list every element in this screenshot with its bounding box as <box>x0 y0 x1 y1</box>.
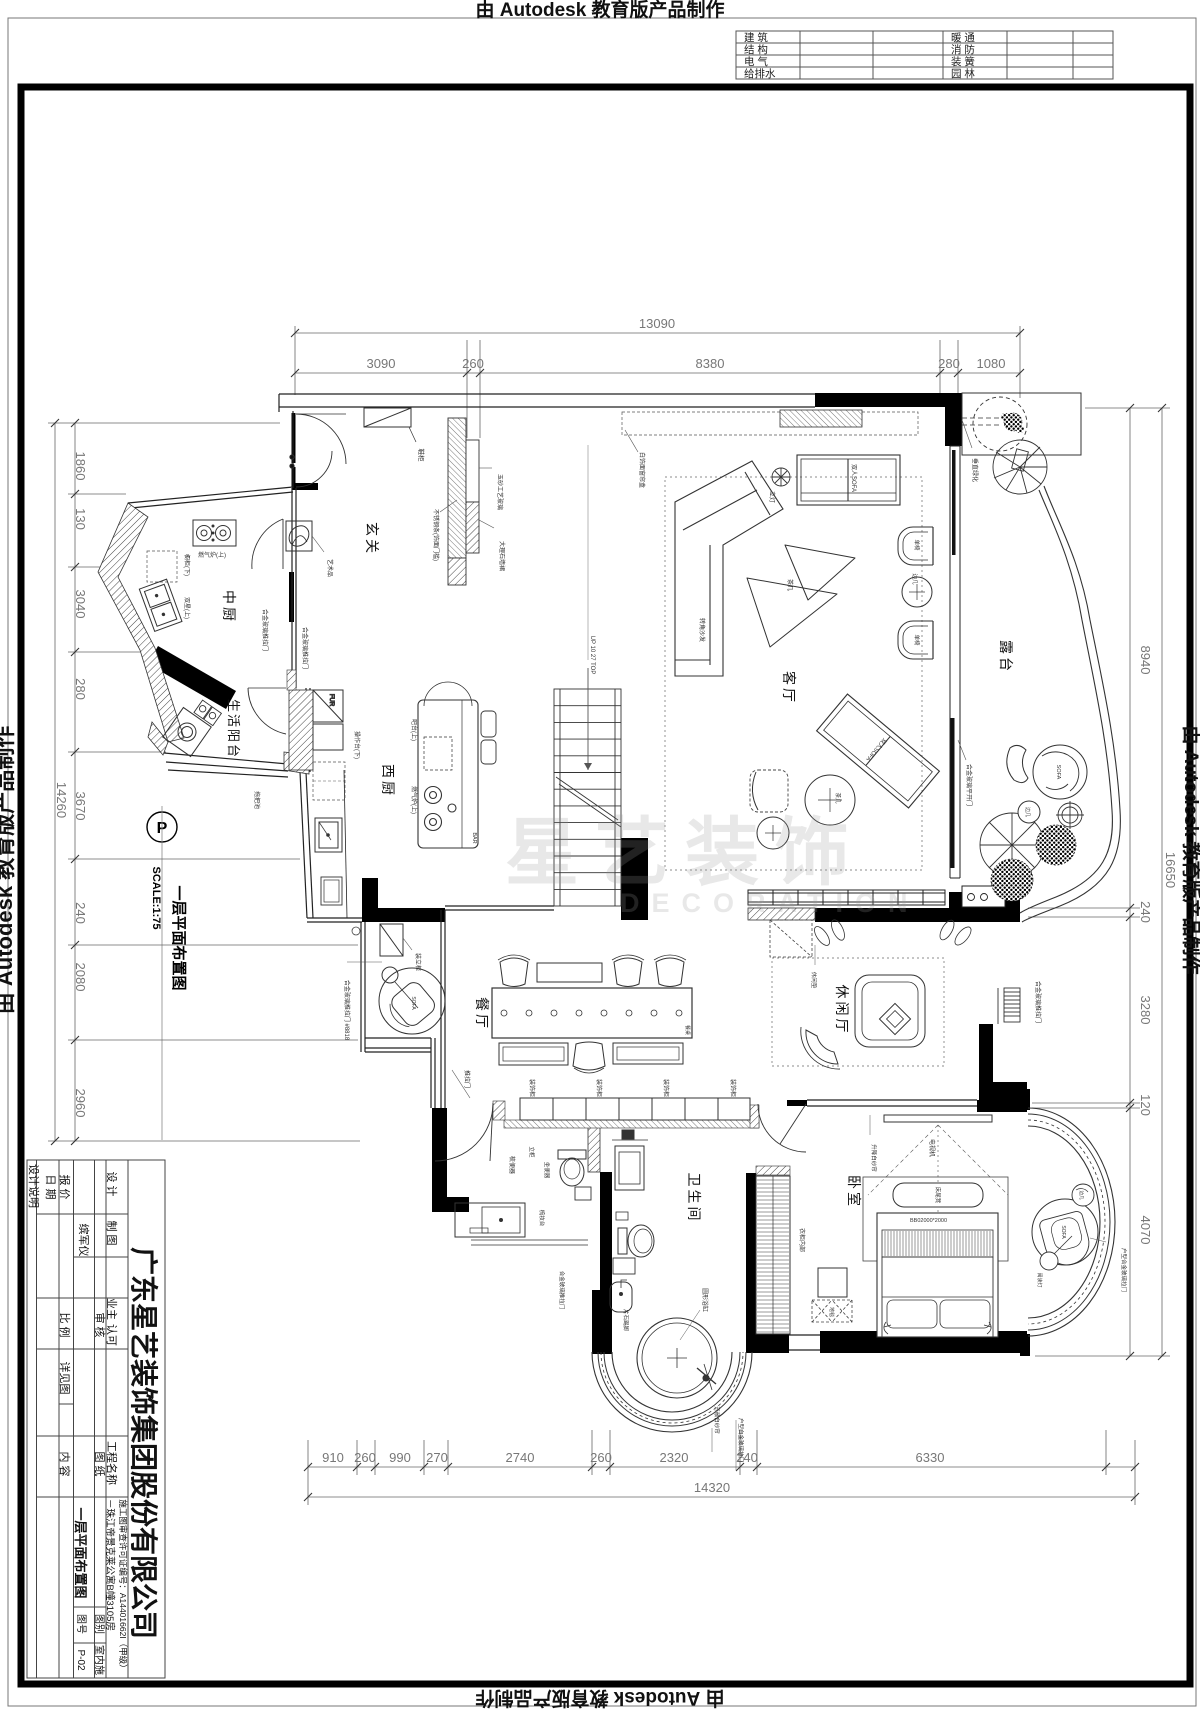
svg-text:休闲垫: 休闲垫 <box>810 972 818 989</box>
svg-text:西厨: 西厨 <box>380 764 396 798</box>
svg-text:240: 240 <box>1138 901 1153 923</box>
svg-text:一层平面布置图: 一层平面布置图 <box>170 885 188 990</box>
svg-text:操作台(下): 操作台(下) <box>353 731 361 759</box>
svg-text:茶几: 茶几 <box>786 579 794 591</box>
svg-text:开敞白纱帘: 开敞白纱帘 <box>713 1406 721 1434</box>
svg-text:16650: 16650 <box>1163 852 1178 888</box>
svg-text:双星(上): 双星(上) <box>183 597 191 619</box>
svg-text:3670: 3670 <box>73 792 88 821</box>
svg-text:茶几: 茶几 <box>834 792 842 804</box>
svg-text:由 Autodesk 教育版产品制作: 由 Autodesk 教育版产品制作 <box>1180 725 1200 974</box>
svg-text:生活阳台: 生活阳台 <box>226 699 241 759</box>
svg-text:1860: 1860 <box>73 452 88 481</box>
svg-text:边几: 边几 <box>911 573 919 585</box>
svg-text:片石踢脚: 片石踢脚 <box>622 1309 630 1332</box>
svg-text:2740: 2740 <box>506 1450 535 1465</box>
svg-text:由 Autodesk 教育版产品制作: 由 Autodesk 教育版产品制作 <box>475 0 724 21</box>
svg-text:260: 260 <box>354 1450 376 1465</box>
svg-text:玄关: 玄关 <box>364 522 380 556</box>
svg-text:垂直绿化: 垂直绿化 <box>971 458 979 482</box>
svg-text:合金玻璃推拉门: 合金玻璃推拉门 <box>301 627 309 669</box>
svg-text:3040: 3040 <box>73 590 88 619</box>
svg-text:客厅: 客厅 <box>781 671 797 705</box>
svg-text:橱柜(下): 橱柜(下) <box>183 554 191 576</box>
svg-text:坐便器: 坐便器 <box>543 1162 551 1179</box>
svg-text:阅读灯: 阅读灯 <box>1036 1272 1043 1287</box>
svg-text:SCALE:1:75: SCALE:1:75 <box>150 867 162 930</box>
svg-text:260: 260 <box>462 356 484 371</box>
svg-text:2960: 2960 <box>73 1089 88 1118</box>
svg-text:立柜: 立柜 <box>528 1146 536 1158</box>
svg-text:燃气炉(上): 燃气炉(上) <box>198 551 226 559</box>
svg-text:日 期: 日 期 <box>44 1174 57 1199</box>
svg-text:13090: 13090 <box>639 316 675 331</box>
svg-text:设计说明: 设计说明 <box>27 1164 41 1208</box>
svg-text:910: 910 <box>322 1450 344 1465</box>
svg-text:边几: 边几 <box>1078 1191 1085 1200</box>
svg-text:14260: 14260 <box>54 782 69 818</box>
svg-text:－珠江帝景克莱公寓B幢3105房: －珠江帝景克莱公寓B幢3105房 <box>104 1499 116 1631</box>
svg-text:鞋柜: 鞋柜 <box>417 449 426 463</box>
svg-text:2080: 2080 <box>73 963 88 992</box>
svg-text:6330: 6330 <box>916 1450 945 1465</box>
svg-text:990: 990 <box>389 1450 411 1465</box>
svg-text:DECORATION: DECORATION <box>620 888 920 918</box>
svg-text:边几: 边几 <box>1024 807 1031 817</box>
svg-text:大理石墙裙: 大理石墙裙 <box>498 541 506 571</box>
svg-text:P-02: P-02 <box>75 1649 86 1671</box>
svg-text:UP 10 27 TOP: UP 10 27 TOP <box>589 636 595 675</box>
svg-text:4070: 4070 <box>1138 1216 1153 1245</box>
svg-text:8380: 8380 <box>696 356 725 371</box>
svg-text:详见图: 详见图 <box>58 1362 72 1395</box>
svg-text:图别: 图别 <box>93 1614 105 1634</box>
svg-text:内 容: 内 容 <box>58 1451 72 1476</box>
svg-text:BB02000*2000: BB02000*2000 <box>910 1218 947 1224</box>
svg-text:合金玻璃推拉门 #8818: 合金玻璃推拉门 #8818 <box>343 980 351 1041</box>
svg-text:单椅: 单椅 <box>913 634 921 646</box>
svg-text:露台: 露台 <box>998 640 1014 674</box>
svg-text:工程名称: 工程名称 <box>105 1441 119 1485</box>
svg-text:图号: 图号 <box>75 1614 87 1634</box>
svg-text:卧室: 卧室 <box>846 1175 862 1209</box>
svg-text:装饰柜: 装饰柜 <box>662 1079 670 1097</box>
svg-text:14320: 14320 <box>694 1480 730 1495</box>
svg-text:240: 240 <box>73 902 88 924</box>
svg-text:艺术品: 艺术品 <box>326 559 334 577</box>
svg-text:由 Autodesk 教育版产品制作: 由 Autodesk 教育版产品制作 <box>0 726 17 1014</box>
svg-text:梳便器: 梳便器 <box>508 1156 516 1174</box>
svg-text:户型合金玻璃拉门: 户型合金玻璃拉门 <box>1120 1248 1128 1292</box>
svg-text:3280: 3280 <box>1138 996 1153 1025</box>
svg-text:电 气: 电 气 <box>744 55 768 68</box>
svg-text:园 林: 园 林 <box>951 67 975 80</box>
svg-text:装饰柜: 装饰柜 <box>595 1079 603 1097</box>
svg-text:设 计: 设 计 <box>105 1171 118 1196</box>
svg-text:1080: 1080 <box>977 356 1006 371</box>
svg-text:SOFA: SOFA <box>1055 765 1061 780</box>
svg-text:装 簧: 装 簧 <box>951 55 975 68</box>
svg-text:白饰面窗帘盒: 白饰面窗帘盒 <box>638 452 646 488</box>
svg-text:130: 130 <box>73 508 88 530</box>
svg-text:地毯: 地毯 <box>828 1307 835 1317</box>
svg-text:双人SOFA: 双人SOFA <box>850 464 857 492</box>
svg-text:一层平面布置图: 一层平面布置图 <box>73 1507 88 1598</box>
svg-text:120: 120 <box>1138 1094 1153 1116</box>
svg-text:260: 260 <box>590 1450 612 1465</box>
svg-text:电视机: 电视机 <box>928 1139 936 1157</box>
svg-text:合金玻璃推拉门: 合金玻璃推拉门 <box>1034 981 1042 1023</box>
svg-text:不锈钢条(饰面门槛): 不锈钢条(饰面门槛) <box>432 509 440 561</box>
svg-text:280: 280 <box>73 678 88 700</box>
svg-text:暖 通: 暖 通 <box>951 31 975 44</box>
svg-text:转角沙发: 转角沙发 <box>698 618 706 642</box>
svg-text:报 价: 报 价 <box>58 1174 72 1199</box>
svg-text:BAR: BAR <box>471 832 477 843</box>
svg-text:2320: 2320 <box>660 1450 689 1465</box>
svg-text:休闲厅: 休闲厅 <box>834 985 850 1036</box>
svg-text:由 Autodesk 教育版产品制作: 由 Autodesk 教育版产品制作 <box>475 1687 724 1710</box>
svg-text:室内施: 室内施 <box>93 1645 106 1675</box>
svg-text:SOFA: SOFA <box>1060 1225 1066 1239</box>
svg-text:餐厅: 餐厅 <box>474 997 490 1031</box>
svg-text:合金玻璃平开门: 合金玻璃平开门 <box>965 764 973 806</box>
svg-text:户型白金玻璃拉门: 户型白金玻璃拉门 <box>737 1418 745 1462</box>
svg-text:圆形浴缸: 圆形浴缸 <box>701 1288 709 1312</box>
svg-text:合金玻璃推拉门: 合金玻璃推拉门 <box>558 1271 566 1310</box>
svg-text:衣柜内部: 衣柜内部 <box>798 1228 806 1252</box>
svg-text:星艺装饰: 星艺装饰 <box>505 811 865 894</box>
svg-text:给排水: 给排水 <box>744 67 776 80</box>
svg-text:立灯: 立灯 <box>768 491 776 503</box>
svg-text:3090: 3090 <box>367 356 396 371</box>
svg-text:玉砂工艺玻璃: 玉砂工艺玻璃 <box>496 474 504 510</box>
svg-text:270: 270 <box>426 1450 448 1465</box>
svg-text:合金玻璃推拉门: 合金玻璃推拉门 <box>261 609 269 651</box>
svg-text:广东星艺装饰集团股份有限公司: 广东星艺装饰集团股份有限公司 <box>128 1247 160 1639</box>
svg-text:缤军仪: 缤军仪 <box>77 1224 91 1257</box>
svg-text:比 例: 比 例 <box>58 1312 72 1337</box>
svg-text:装饰柜: 装饰柜 <box>528 1079 536 1097</box>
svg-text:餐桌: 餐桌 <box>684 1025 691 1035</box>
svg-text:建 筑: 建 筑 <box>744 31 768 44</box>
svg-text:施工图审查许可证编号：A14401662I（甲级）: 施工图审查许可证编号：A14401662I（甲级） <box>118 1499 128 1672</box>
svg-text:床尾凳: 床尾凳 <box>934 1187 942 1204</box>
svg-text:SOFA: SOFA <box>410 996 416 1010</box>
svg-text:8940: 8940 <box>1138 646 1153 675</box>
svg-text:燃气炉(上): 燃气炉(上) <box>410 786 418 814</box>
svg-text:梳妆台: 梳妆台 <box>538 1210 546 1227</box>
svg-text:280: 280 <box>938 356 960 371</box>
svg-text:升降白纱帘: 升降白纱帘 <box>870 1144 878 1172</box>
svg-text:结 构: 结 构 <box>744 43 768 56</box>
svg-text:中厨: 中厨 <box>221 590 237 624</box>
svg-text:拖把池: 拖把池 <box>253 791 261 809</box>
svg-text:图 纸: 图 纸 <box>93 1451 106 1476</box>
svg-text:单椅: 单椅 <box>913 539 921 551</box>
svg-text:业主: 业主 <box>105 1298 118 1320</box>
svg-text:审 核: 审 核 <box>93 1312 107 1337</box>
svg-text:卫生间: 卫生间 <box>686 1173 702 1224</box>
svg-text:吧台(上): 吧台(上) <box>410 719 418 741</box>
svg-text:认可: 认可 <box>105 1324 118 1346</box>
svg-text:装饰柜: 装饰柜 <box>729 1079 737 1097</box>
svg-text:推拉门: 推拉门 <box>463 1070 471 1088</box>
svg-text:制 图: 制 图 <box>105 1220 118 1245</box>
svg-text:消 防: 消 防 <box>951 43 975 56</box>
svg-text:FUR: FUR <box>328 694 334 707</box>
